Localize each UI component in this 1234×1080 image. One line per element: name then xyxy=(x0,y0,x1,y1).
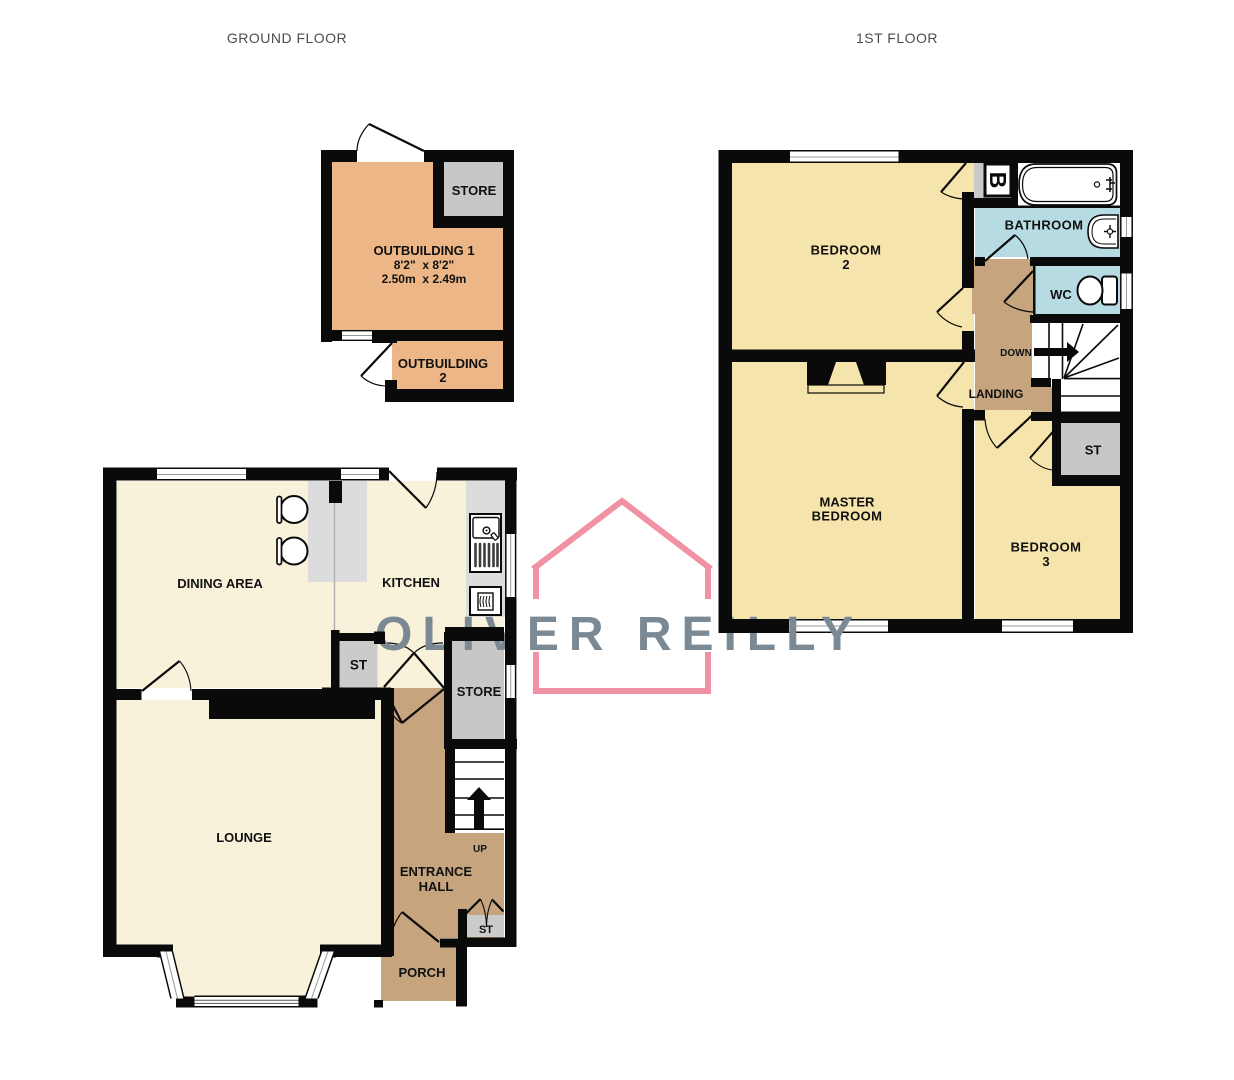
svg-text:LOUNGE: LOUNGE xyxy=(216,830,272,845)
svg-text:KITCHEN: KITCHEN xyxy=(382,575,440,590)
svg-text:2.50m x 2.49m: 2.50m x 2.49m xyxy=(382,272,467,286)
svg-text:OUTBUILDING: OUTBUILDING xyxy=(398,356,488,371)
svg-text:2: 2 xyxy=(842,257,849,272)
svg-text:ENTRANCE: ENTRANCE xyxy=(400,864,473,879)
svg-text:3: 3 xyxy=(1042,554,1049,569)
svg-text:BEDROOM: BEDROOM xyxy=(812,509,883,524)
svg-text:MASTER: MASTER xyxy=(820,495,876,510)
svg-text:OUTBUILDING 1: OUTBUILDING 1 xyxy=(373,243,474,258)
svg-text:BATHROOM: BATHROOM xyxy=(1005,218,1084,233)
svg-text:DINING AREA: DINING AREA xyxy=(177,576,263,591)
svg-text:B: B xyxy=(985,172,1011,189)
svg-text:ST: ST xyxy=(479,924,493,936)
svg-text:BEDROOM: BEDROOM xyxy=(811,243,882,258)
svg-text:HALL: HALL xyxy=(419,879,454,894)
svg-text:ST: ST xyxy=(350,658,368,673)
svg-text:1ST FLOOR: 1ST FLOOR xyxy=(856,30,938,46)
svg-text:UP: UP xyxy=(473,844,487,855)
svg-text:2: 2 xyxy=(439,370,446,385)
svg-text:LANDING: LANDING xyxy=(969,387,1024,401)
svg-text:STORE: STORE xyxy=(457,684,502,699)
svg-text:DOWN: DOWN xyxy=(1000,348,1032,359)
svg-text:8'2" x 8'2": 8'2" x 8'2" xyxy=(394,258,454,272)
svg-text:ST: ST xyxy=(1085,443,1102,458)
svg-text:BEDROOM: BEDROOM xyxy=(1011,540,1082,555)
svg-text:WC: WC xyxy=(1050,287,1072,302)
svg-text:GROUND FLOOR: GROUND FLOOR xyxy=(227,30,347,46)
svg-text:STORE: STORE xyxy=(452,183,497,198)
svg-text:PORCH: PORCH xyxy=(399,965,446,980)
